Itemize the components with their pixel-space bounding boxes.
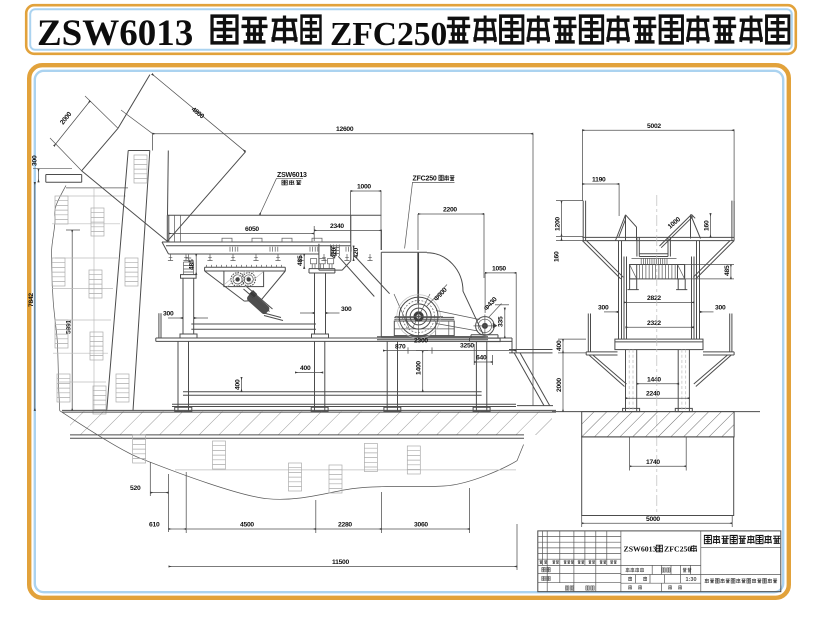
svg-text:485: 485 <box>297 255 304 266</box>
svg-text:1000: 1000 <box>357 184 371 191</box>
svg-text:3250: 3250 <box>460 342 474 349</box>
svg-text:160: 160 <box>704 220 711 231</box>
svg-text:400: 400 <box>300 365 311 372</box>
svg-text:1400: 1400 <box>416 361 423 375</box>
svg-text:300: 300 <box>341 306 352 313</box>
svg-text:160: 160 <box>554 251 561 262</box>
svg-text:2340: 2340 <box>330 223 344 230</box>
svg-text:300: 300 <box>598 304 609 311</box>
svg-text:12600: 12600 <box>336 126 354 133</box>
svg-text:7842: 7842 <box>28 293 35 307</box>
svg-text:ZSW6013: ZSW6013 <box>37 13 193 54</box>
svg-text:ZFC250: ZFC250 <box>664 544 691 553</box>
svg-text:1190: 1190 <box>592 177 606 184</box>
svg-text:2240: 2240 <box>646 391 660 398</box>
svg-text:1440: 1440 <box>647 376 661 383</box>
svg-text:485: 485 <box>189 259 196 270</box>
svg-text:2000: 2000 <box>556 378 563 392</box>
svg-text:2822: 2822 <box>647 295 661 302</box>
svg-text:4500: 4500 <box>240 521 254 528</box>
svg-text:1050: 1050 <box>492 265 506 272</box>
svg-text:ZFC250: ZFC250 <box>330 16 447 53</box>
svg-text:2280: 2280 <box>338 521 352 528</box>
svg-text:1740: 1740 <box>646 459 660 466</box>
svg-text:420: 420 <box>331 248 338 259</box>
svg-text:300: 300 <box>163 311 174 318</box>
svg-text:5000: 5000 <box>646 516 660 523</box>
svg-text:2200: 2200 <box>443 207 457 214</box>
svg-text:11500: 11500 <box>332 559 350 566</box>
svg-text:520: 520 <box>130 485 141 492</box>
svg-text:610: 610 <box>149 521 160 528</box>
svg-text:1:30: 1:30 <box>686 577 697 583</box>
svg-text:640: 640 <box>476 355 487 362</box>
svg-text:3060: 3060 <box>414 521 428 528</box>
svg-text:ZFC250: ZFC250 <box>413 176 437 183</box>
svg-text:ZSW6013: ZSW6013 <box>277 172 307 179</box>
svg-text:400: 400 <box>556 340 563 351</box>
svg-text:335: 335 <box>498 316 505 327</box>
svg-text:ZSW6013: ZSW6013 <box>624 544 657 553</box>
svg-text:400: 400 <box>235 379 242 390</box>
svg-text:1200: 1200 <box>555 217 562 231</box>
svg-text:485: 485 <box>724 265 731 276</box>
svg-text:2300: 2300 <box>414 338 428 345</box>
svg-text:300: 300 <box>32 155 39 166</box>
svg-text:420: 420 <box>353 248 360 259</box>
svg-text:2322: 2322 <box>647 320 661 327</box>
svg-text:6050: 6050 <box>245 226 259 233</box>
svg-text:5002: 5002 <box>647 123 661 130</box>
svg-text:5991: 5991 <box>66 320 73 334</box>
svg-text:300: 300 <box>715 304 726 311</box>
svg-text:870: 870 <box>395 343 406 350</box>
